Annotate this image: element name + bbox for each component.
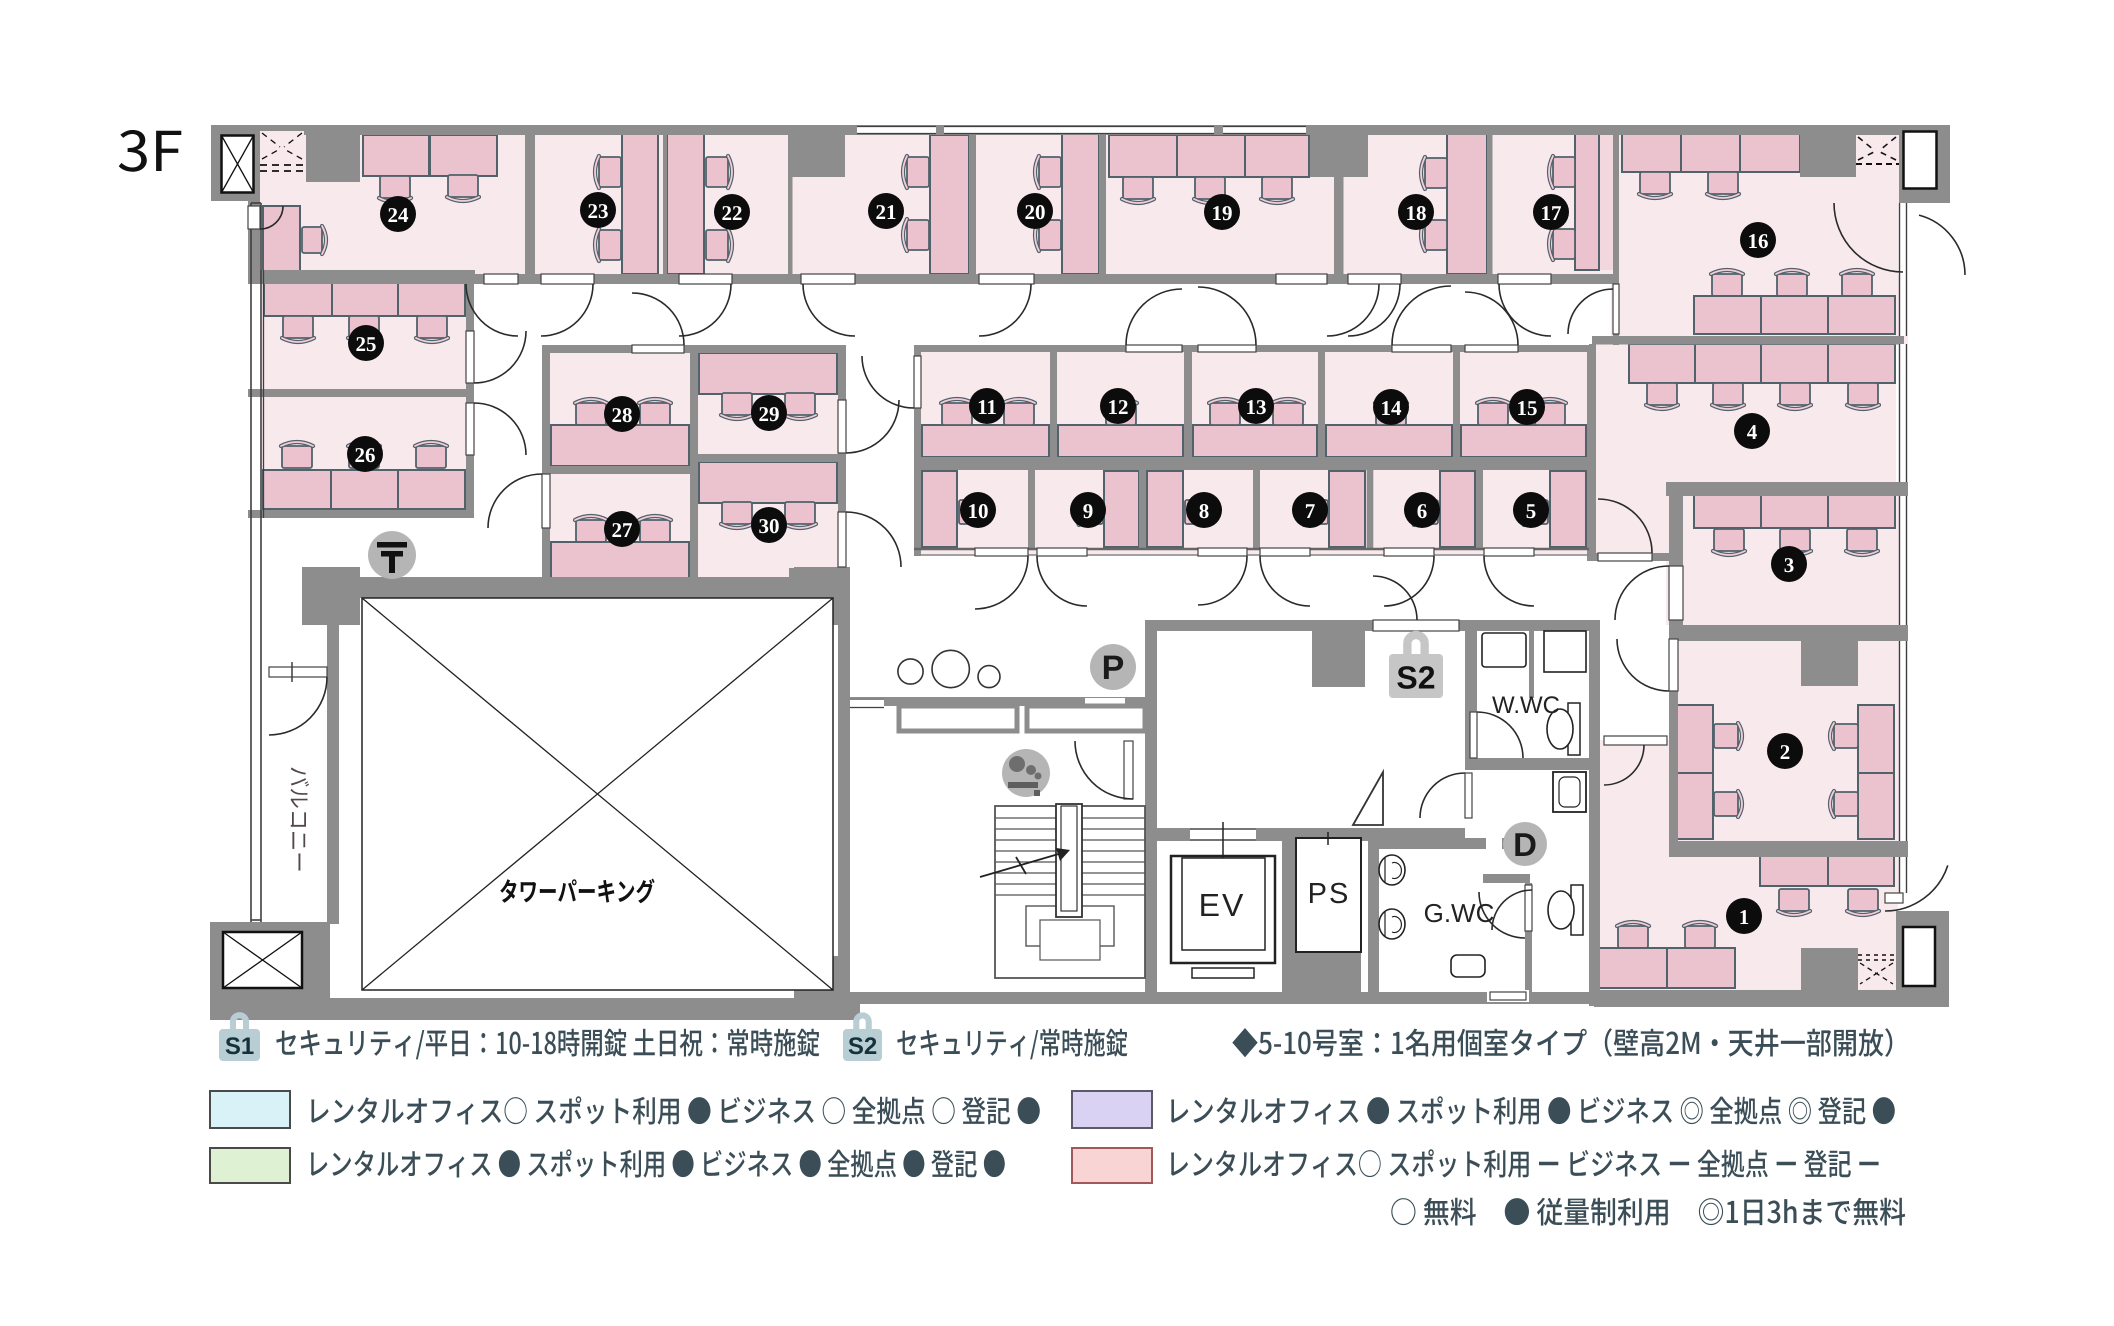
svg-text:20: 20	[1025, 200, 1046, 224]
svg-text:22: 22	[722, 201, 743, 225]
svg-text:D: D	[1513, 826, 1537, 863]
svg-text:16: 16	[1748, 229, 1769, 253]
svg-text:10: 10	[968, 499, 989, 523]
svg-text:5: 5	[1526, 499, 1537, 523]
svg-text:9: 9	[1083, 499, 1094, 523]
svg-text:27: 27	[612, 518, 633, 542]
svg-text:6: 6	[1417, 499, 1428, 523]
svg-text:8: 8	[1199, 499, 1210, 523]
svg-text:S1: S1	[225, 1033, 254, 1060]
svg-text:14: 14	[1381, 396, 1403, 420]
svg-text:19: 19	[1212, 201, 1233, 225]
svg-text:1: 1	[1739, 905, 1750, 929]
svg-text:EV: EV	[1199, 887, 1246, 923]
svg-text:G.WC: G.WC	[1424, 898, 1495, 928]
svg-text:17: 17	[1541, 201, 1562, 225]
svg-text:18: 18	[1406, 201, 1427, 225]
svg-text:25: 25	[356, 332, 377, 356]
svg-text:21: 21	[876, 200, 897, 224]
svg-text:29: 29	[759, 402, 780, 426]
svg-text:11: 11	[977, 395, 997, 419]
svg-text:S2: S2	[1396, 659, 1435, 695]
svg-text:15: 15	[1517, 396, 1538, 420]
svg-text:13: 13	[1246, 395, 1267, 419]
svg-text:W.WC: W.WC	[1492, 692, 1560, 719]
svg-text:S2: S2	[848, 1033, 877, 1060]
svg-text:3: 3	[1784, 553, 1795, 577]
svg-text:23: 23	[588, 199, 609, 223]
svg-text:12: 12	[1108, 395, 1129, 419]
svg-text:28: 28	[612, 403, 633, 427]
svg-text:30: 30	[759, 514, 780, 538]
svg-text:2: 2	[1780, 740, 1791, 764]
svg-text:26: 26	[355, 443, 376, 467]
svg-text:PS: PS	[1308, 878, 1351, 910]
svg-text:7: 7	[1305, 499, 1316, 523]
svg-text:24: 24	[388, 203, 410, 227]
svg-text:P: P	[1102, 649, 1125, 687]
svg-text:4: 4	[1747, 420, 1758, 444]
